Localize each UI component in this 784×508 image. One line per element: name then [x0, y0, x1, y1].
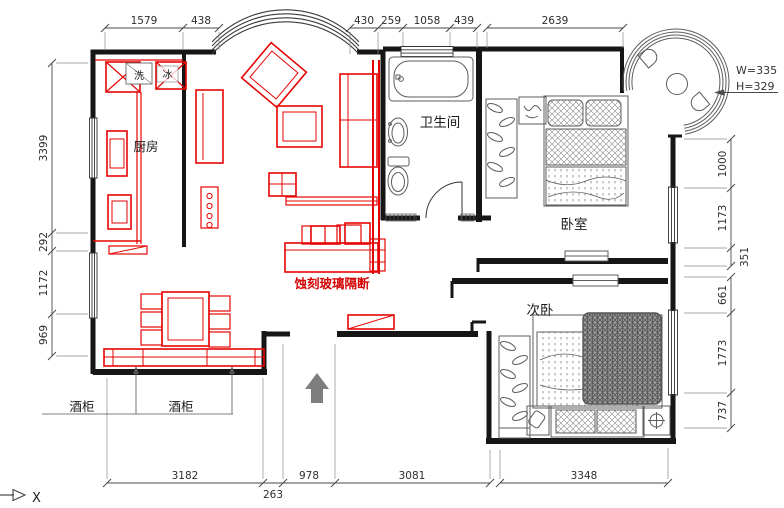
- wine-cabinet: [104, 349, 264, 366]
- area-rug: [242, 43, 307, 108]
- dim-label: 969: [38, 325, 50, 345]
- low-table: [345, 223, 370, 244]
- dim-label: 1000: [717, 151, 729, 178]
- dim-label: 978: [299, 470, 319, 482]
- bathroom-door: [426, 182, 462, 218]
- dim-label: 263: [263, 489, 283, 501]
- left-window-1: [89, 118, 98, 178]
- dining-set: [141, 292, 230, 347]
- door-threshold: [461, 214, 474, 221]
- dim-label: 430: [354, 15, 374, 27]
- dim-label: 259: [381, 15, 401, 27]
- arched-bay-window: [212, 10, 359, 54]
- bedroom-right-window: [668, 187, 678, 243]
- left-window-2: [89, 253, 98, 318]
- master-bedroom-furniture: [486, 96, 628, 206]
- room-label-kitchen: 厨房: [133, 139, 158, 154]
- axis-x-label: X: [32, 491, 41, 506]
- second-bedroom-right-window: [668, 310, 678, 395]
- nightstand-icon: [519, 97, 546, 124]
- bench-icon: [551, 406, 644, 437]
- bathroom-top-window: [401, 46, 453, 57]
- dim-label: 3348: [571, 470, 598, 482]
- bed-icon: [533, 313, 662, 408]
- dim-label: 351: [739, 247, 751, 267]
- plant-stand: [201, 187, 218, 228]
- room-label-bathroom: 卫生间: [420, 115, 461, 131]
- dim-label: 737: [717, 401, 729, 421]
- axis-arrow-icon: [13, 490, 25, 501]
- wardrobe-icon: [499, 336, 530, 438]
- wine-cabinet-label-1: 酒柜: [69, 399, 94, 414]
- second-bedroom-furniture: [499, 313, 670, 438]
- label-wash: 洗: [134, 70, 144, 82]
- bathroom-fixtures: [386, 57, 474, 221]
- toilet-icon: [388, 157, 409, 195]
- glass-partition-label: 蚀刻玻璃隔断: [293, 276, 370, 291]
- wardrobe-icon: [486, 99, 517, 198]
- dim-label: 1773: [717, 340, 729, 367]
- wine-cabinet-label-2: 酒柜: [168, 399, 193, 414]
- window-width-label: W=335: [736, 64, 777, 77]
- window-height-label: H=329: [736, 80, 774, 93]
- x-axis-marker: X: [0, 490, 41, 507]
- dim-label: 438: [191, 15, 211, 27]
- dim-label: 1173: [717, 205, 729, 232]
- dim-label: 1172: [38, 270, 50, 297]
- dim-label: 439: [454, 15, 474, 27]
- room-label-master-bedroom: 卧室: [561, 216, 588, 233]
- room-label-second-bedroom: 次卧: [527, 303, 554, 319]
- hall-cabinet: [285, 225, 378, 272]
- dim-label: 292: [38, 232, 50, 252]
- dim-label: 3399: [38, 135, 50, 162]
- coffee-table: [277, 106, 322, 147]
- dim-label: 1058: [414, 15, 441, 27]
- dim-label: 661: [717, 285, 729, 305]
- appliance-labels: 洗 冰: [126, 63, 178, 84]
- tv-cabinet: [196, 90, 223, 163]
- dim-label: 1579: [131, 15, 158, 27]
- hallway-bench: [348, 315, 394, 329]
- dim-label: 3182: [172, 470, 199, 482]
- round-table: [667, 74, 688, 95]
- kitchen-cabinets: [93, 60, 186, 254]
- window-size-callout: W=335 H=329: [714, 64, 778, 96]
- stool-icon: [643, 406, 670, 435]
- round-bay-window: [623, 29, 729, 134]
- sliding-door-panels: [565, 251, 618, 286]
- red-furniture-overlay: [93, 43, 394, 366]
- label-fridge: 冰: [163, 68, 173, 81]
- chair-icon: [688, 92, 710, 114]
- sink-icon: [389, 118, 408, 146]
- bathtub-icon: [389, 57, 473, 101]
- side-table: [269, 173, 296, 196]
- entry-arrow-icon: [305, 373, 329, 403]
- floor-plan-canvas: 洗 冰 1579 438 430 259 1058 439 2639: [0, 0, 784, 508]
- sofa: [340, 74, 377, 167]
- double-bed-icon: [544, 96, 628, 206]
- floor-plan-drawing: 洗 冰 1579 438 430 259 1058 439 2639: [0, 0, 784, 508]
- dim-label: 3081: [399, 470, 426, 482]
- dark-quilt: [583, 313, 661, 404]
- dim-label: 2639: [542, 15, 569, 27]
- door-threshold: [386, 214, 416, 221]
